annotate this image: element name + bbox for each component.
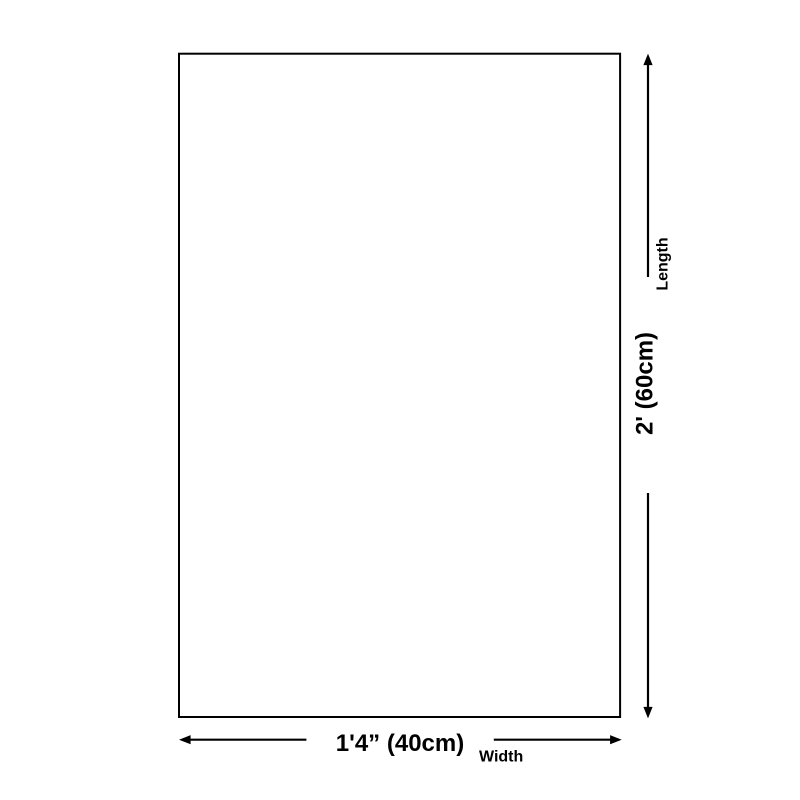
svg-text:Length: Length	[655, 237, 672, 290]
svg-text:Width: Width	[479, 749, 523, 766]
svg-text:1'4” (40cm): 1'4” (40cm)	[336, 730, 464, 757]
svg-text:2' (60cm): 2' (60cm)	[632, 332, 659, 435]
